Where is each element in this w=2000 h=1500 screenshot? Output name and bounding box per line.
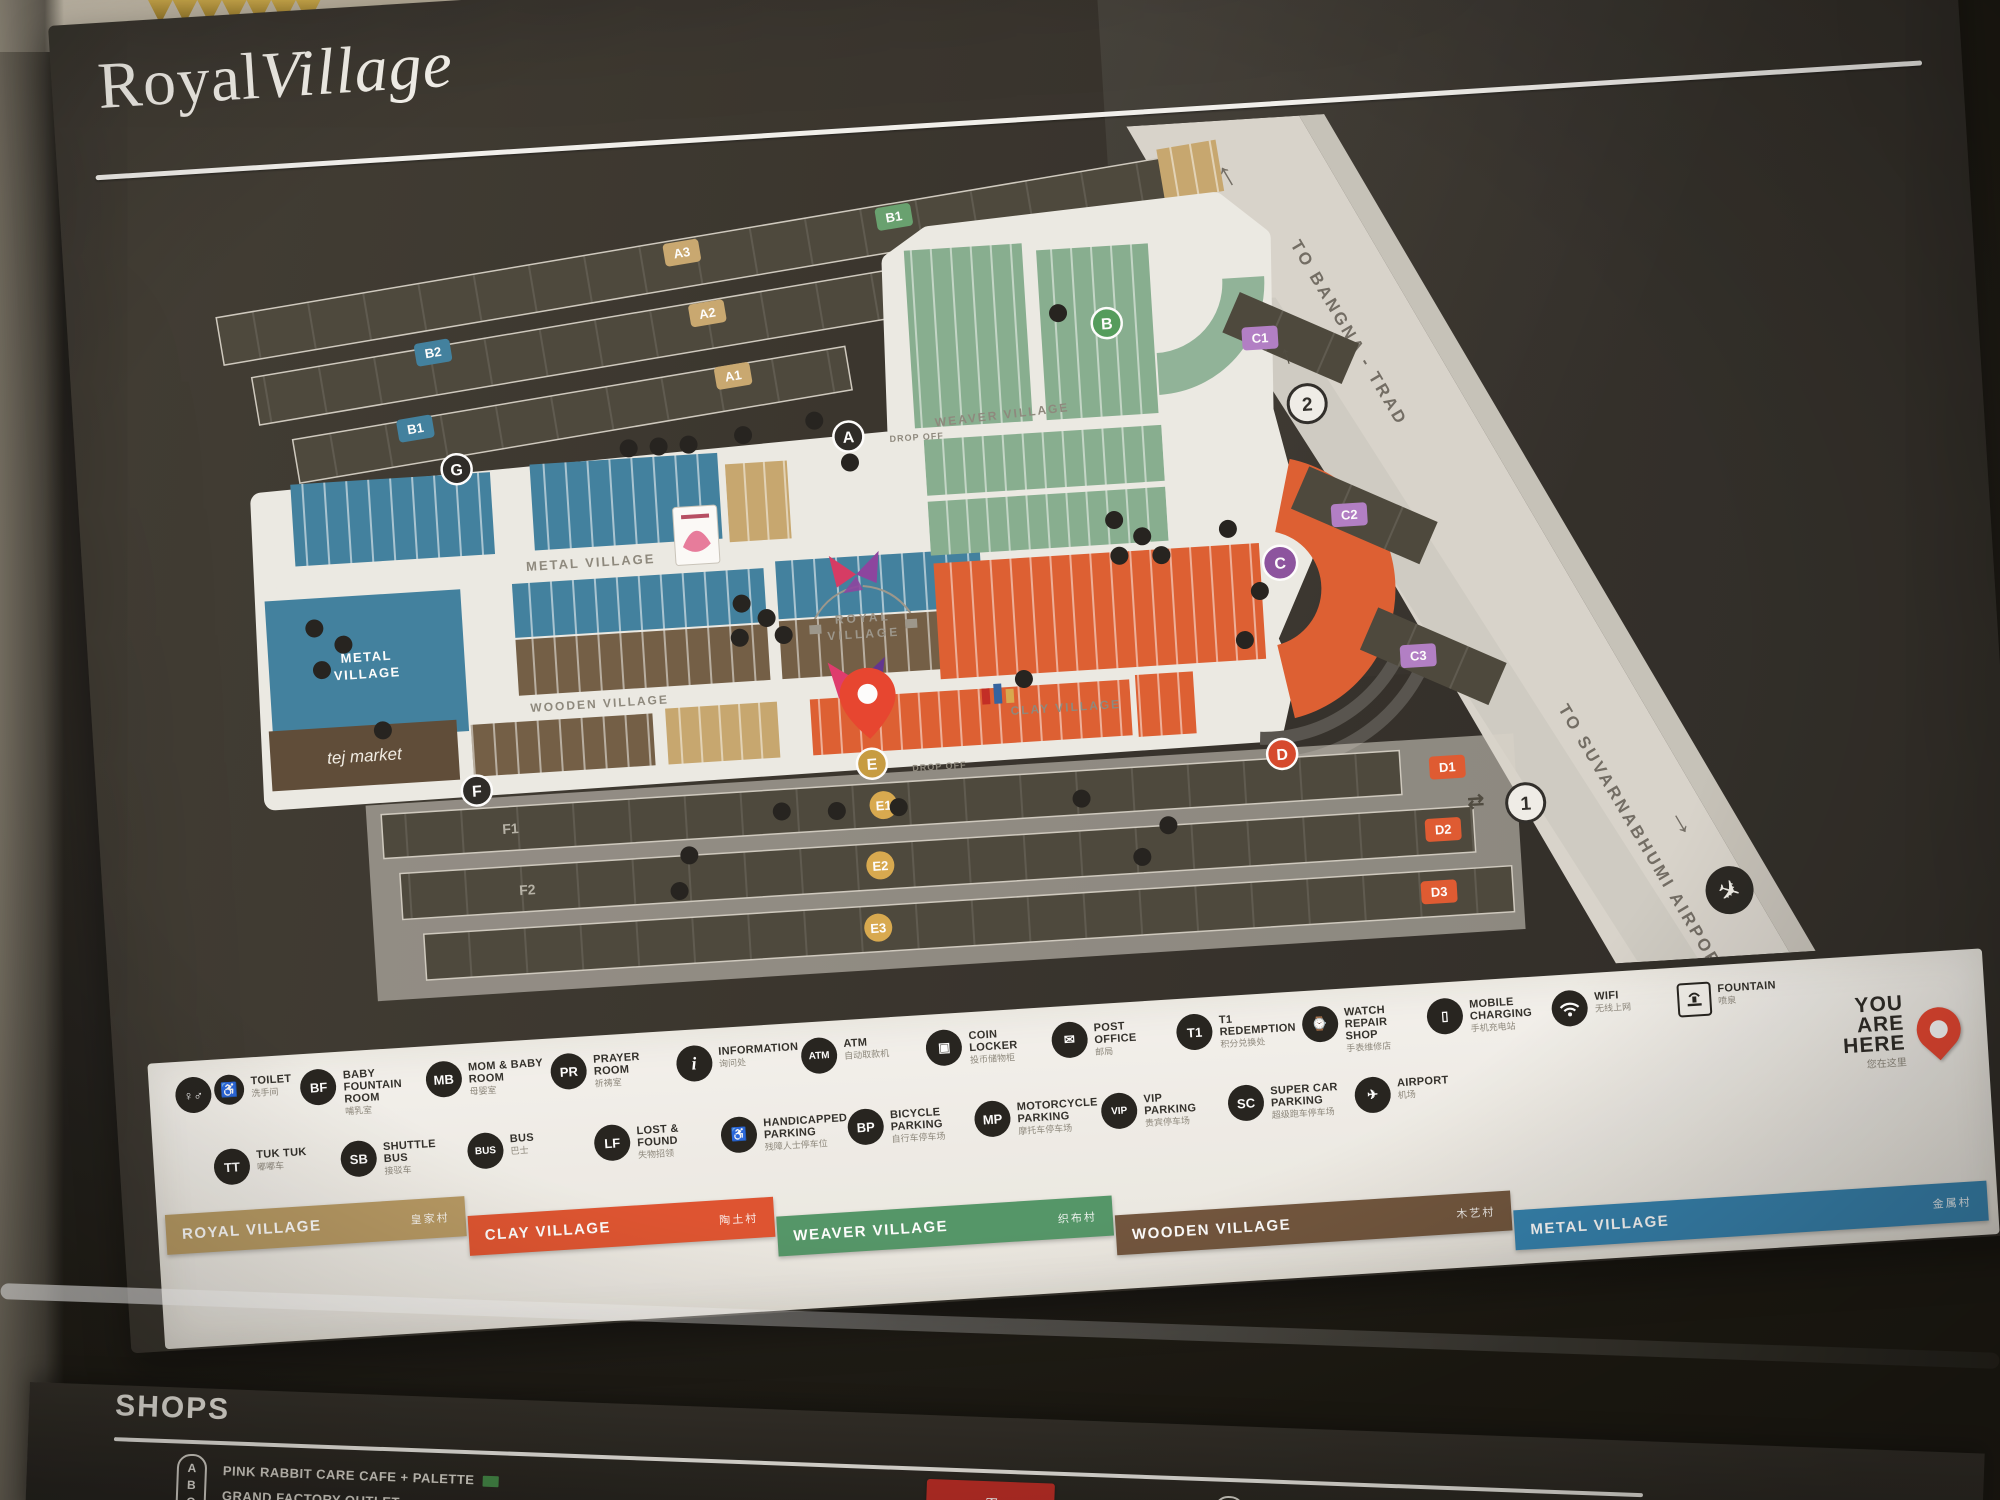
site-map: ↑ TO BANGNA - TRAD TO SUVARNABHUMI AIRPO… <box>86 76 1985 1056</box>
svg-text:C2: C2 <box>1340 507 1358 523</box>
title-italic: Village <box>258 28 455 113</box>
svg-text:C: C <box>1274 555 1287 573</box>
legend-watch-repair: ⌚ WATCH REPAIR SHOP手表维修店 <box>1301 999 1429 1057</box>
handicapped-parking-icon: ♿ <box>720 1116 758 1154</box>
gate-B: B <box>1091 307 1123 339</box>
you-are-here-legend: YOUAREHERE 您在这里 <box>1840 990 1963 1072</box>
svg-text:D3: D3 <box>1430 884 1448 900</box>
wifi-icon <box>1551 989 1589 1027</box>
svg-text:B2: B2 <box>424 344 443 362</box>
fountain-icon <box>1676 982 1712 1018</box>
legend-airport: ✈ AIRPORT机场 <box>1354 1070 1483 1116</box>
svg-text:D1: D1 <box>1439 759 1457 775</box>
legend-information: i INFORMATION询问处 <box>675 1039 803 1097</box>
post-office-icon: ✉ <box>1050 1021 1088 1059</box>
lost-found-icon: LF <box>593 1124 631 1162</box>
parking-badge-C3: C3 <box>1400 643 1437 668</box>
legend-supercar-parking: SC SUPER CAR PARKING超级跑车停车场 <box>1227 1078 1356 1124</box>
svg-text:B1: B1 <box>406 420 425 438</box>
zone-pill-abc: ABC <box>174 1453 207 1500</box>
legend-motorcycle-parking: MP MOTORCYCLE PARKING摩托车停车场 <box>973 1094 1102 1140</box>
legend-wifi: WIFI无线上网 <box>1551 984 1679 1042</box>
prayer-room-icon: PR <box>550 1052 588 1090</box>
legend-vip-parking: VIP VIP PARKING贵宾停车场 <box>1100 1086 1229 1132</box>
legend-coin-locker: ▣ COIN LOCKER投币储物柜 <box>925 1023 1053 1081</box>
supercar-parking-icon: SC <box>1227 1084 1265 1122</box>
color-bar-royal-village: ROYAL VILLAGE皇家村 <box>165 1196 467 1255</box>
gate-G: G <box>441 453 473 485</box>
svg-text:E2: E2 <box>872 858 889 874</box>
zone-pill-a: A <box>1212 1495 1244 1500</box>
coin-locker-icon: ▣ <box>925 1029 963 1067</box>
parking-badge-D1: D1 <box>1429 754 1466 779</box>
gate-E: E <box>856 748 888 780</box>
legend-shuttle-bus: SB SHUTTLE BUS接驳车 <box>340 1134 469 1180</box>
svg-text:A1: A1 <box>724 367 743 385</box>
parking-badge-D2: D2 <box>1425 817 1462 842</box>
motorcycle-parking-icon: MP <box>973 1100 1011 1138</box>
legend-tuk-tuk: TT TUK TUK嘟嘟车 <box>213 1142 342 1188</box>
color-bar-metal-village: METAL VILLAGE金属村 <box>1513 1181 1989 1251</box>
svg-text:C1: C1 <box>1251 330 1269 346</box>
shops-panel: SHOPS ABC PINK RABBIT CARE CAFE + PALETT… <box>25 1382 1984 1500</box>
bicycle-parking-icon: BP <box>847 1108 885 1146</box>
legend-mobile-charging: ▯ MOBILE CHARGING手机充电站 <box>1426 992 1554 1050</box>
svg-text:E: E <box>866 756 878 774</box>
shop-logo-red: T <box>925 1479 1055 1500</box>
legend-lost-found: LF LOST & FOUND失物招领 <box>593 1118 722 1164</box>
svg-text:C3: C3 <box>1409 648 1427 664</box>
wall-edge <box>0 0 64 1500</box>
svg-text:B4: B4 <box>1088 77 1108 95</box>
legend-prayer-room: PR PRAYER ROOM祈祷室 <box>550 1047 678 1105</box>
mobile-charging-icon: ▯ <box>1426 997 1464 1035</box>
legend-atm: ATM ATM自动取款机 <box>800 1031 928 1089</box>
pink-shop-logo <box>672 505 720 566</box>
svg-text:B: B <box>1101 316 1114 334</box>
legend-bus: BUS BUS巴士 <box>466 1126 595 1172</box>
svg-text:D: D <box>1276 747 1289 765</box>
legend-toilet: ♀♂ ♿ TOILET洗手间 <box>174 1070 302 1128</box>
shop-tag <box>482 1475 498 1487</box>
parking-label-F1: F1 <box>502 820 520 837</box>
mom-baby-room-icon: MB <box>425 1060 463 1098</box>
legend-fountain: FOUNTAIN喷泉 <box>1676 976 1804 1034</box>
legend-mom-baby-room: MB MOM & BABY ROOM母婴室 <box>425 1055 553 1113</box>
legend-post-office: ✉ POST OFFICE邮局 <box>1050 1015 1178 1073</box>
svg-text:⇄: ⇄ <box>1467 790 1485 813</box>
baby-fountain-room-icon: BF <box>299 1068 337 1106</box>
you-are-here-pin-icon <box>1908 998 1970 1060</box>
legend-bicycle-parking: BP BICYCLE PARKING自行车停车场 <box>847 1102 976 1148</box>
gate-A: A <box>832 421 864 453</box>
gate-D: D <box>1266 738 1298 770</box>
parking-badge-B4-green: B4 <box>1078 76 1117 100</box>
parking-label-F2: F2 <box>519 881 537 898</box>
svg-text:D2: D2 <box>1434 821 1452 837</box>
shops-heading: SHOPS <box>115 1389 231 1427</box>
tuk-tuk-icon: TT <box>213 1148 251 1186</box>
svg-text:1: 1 <box>1520 793 1532 815</box>
shop-list: PINK RABBIT CARE CAFE + PALETTE GRAND FA… <box>221 1459 498 1500</box>
svg-text:E3: E3 <box>870 920 887 936</box>
svg-text:F: F <box>472 783 483 801</box>
svg-text:E1: E1 <box>875 798 892 814</box>
bus-icon: BUS <box>466 1132 504 1170</box>
wheelchair-icon: ♿ <box>213 1074 245 1106</box>
title-regular: Royal <box>96 40 263 123</box>
board-title: RoyalVillage <box>96 27 455 125</box>
shuttle-bus-icon: SB <box>340 1140 378 1178</box>
t1-redemption-icon: T1 <box>1175 1013 1213 1051</box>
svg-text:A2: A2 <box>698 305 717 323</box>
information-icon: i <box>675 1044 713 1082</box>
svg-text:G: G <box>450 462 463 480</box>
vip-parking-icon: VIP <box>1100 1092 1138 1130</box>
watch-repair-icon: ⌚ <box>1301 1005 1339 1043</box>
directory-board: RoyalVillage <box>48 0 2000 1353</box>
gate-F: F <box>461 775 493 807</box>
color-bar-clay-village: CLAY VILLAGE陶土村 <box>468 1197 776 1256</box>
toilet-icon: ♀♂ <box>174 1076 212 1114</box>
svg-text:B1: B1 <box>884 208 903 226</box>
parking-badge-C2: C2 <box>1331 502 1368 527</box>
color-bar-weaver-village: WEAVER VILLAGE织布村 <box>776 1196 1114 1257</box>
legend-handicapped-parking: ♿ HANDICAPPED PARKING残障人士停车位 <box>720 1110 849 1156</box>
color-bar-wooden-village: WOODEN VILLAGE木艺村 <box>1115 1190 1513 1255</box>
svg-text:2: 2 <box>1301 394 1313 416</box>
legend-baby-fountain-room: BF BABY FOUNTAIN ROOM哺乳室 <box>299 1062 427 1120</box>
airport-icon: ✈ <box>1354 1076 1392 1114</box>
parking-badge-C1: C1 <box>1241 325 1278 350</box>
gate-C: C <box>1262 545 1298 581</box>
legend-t1-redemption: T1 T1 REDEMPTION积分兑换处 <box>1175 1007 1303 1065</box>
mall-directory-photo: RoyalVillage <box>0 0 2000 1500</box>
svg-text:A: A <box>842 429 855 447</box>
atm-icon: ATM <box>800 1037 838 1075</box>
parking-badge-D3: D3 <box>1420 879 1457 904</box>
svg-text:A3: A3 <box>672 244 691 262</box>
